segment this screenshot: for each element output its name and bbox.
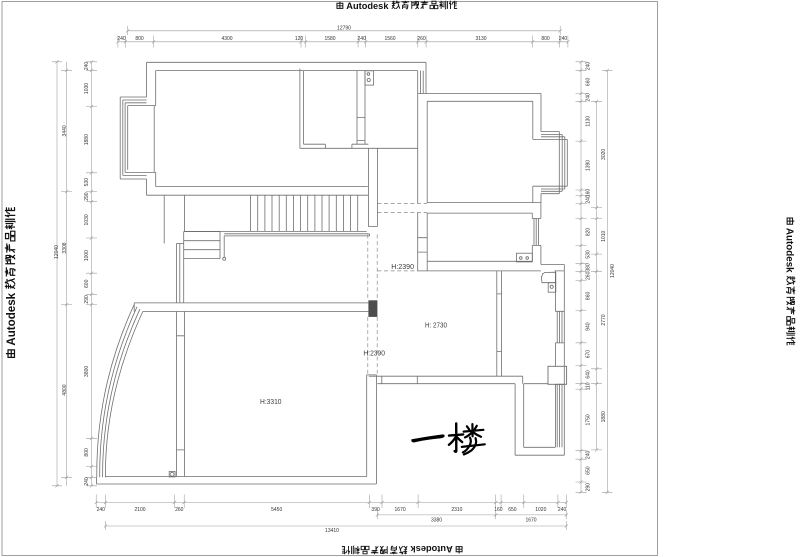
svg-text:650: 650 (586, 466, 592, 475)
svg-text:1580: 1580 (324, 36, 335, 42)
svg-text:240: 240 (586, 451, 592, 460)
svg-text:240: 240 (586, 62, 592, 71)
svg-text:660: 660 (586, 78, 592, 87)
svg-text:1750: 1750 (586, 414, 592, 425)
svg-text:1030: 1030 (84, 214, 90, 225)
svg-text:3380: 3380 (431, 518, 442, 524)
svg-text:12790: 12790 (337, 25, 351, 31)
svg-text:240: 240 (558, 507, 567, 513)
svg-text:5450: 5450 (271, 507, 282, 513)
svg-text:2100: 2100 (134, 507, 145, 513)
svg-text:3308: 3308 (62, 242, 68, 253)
svg-text:1560: 1560 (384, 36, 395, 42)
svg-text:4800: 4800 (62, 384, 68, 395)
svg-text:Autodesk: Autodesk (4, 292, 18, 345)
svg-text:290: 290 (84, 295, 90, 304)
svg-text:3800: 3800 (84, 366, 90, 377)
svg-text:240: 240 (358, 36, 367, 42)
svg-text:800: 800 (541, 36, 550, 42)
svg-text:4300: 4300 (221, 36, 232, 42)
svg-text:1000: 1000 (84, 250, 90, 261)
svg-text:Autodesk: Autodesk (346, 1, 389, 12)
svg-text:260: 260 (417, 36, 426, 42)
svg-text:1880: 1880 (601, 411, 607, 422)
svg-text:240: 240 (559, 36, 568, 42)
svg-text:820: 820 (586, 228, 592, 237)
svg-text:H: 2730: H: 2730 (425, 322, 447, 329)
svg-text:800: 800 (135, 36, 144, 42)
svg-text:1670: 1670 (525, 518, 536, 524)
svg-text:240: 240 (586, 195, 592, 204)
svg-text:120: 120 (295, 36, 304, 42)
svg-text:290: 290 (84, 192, 90, 201)
svg-text:260: 260 (175, 507, 184, 513)
svg-text:3020: 3020 (601, 149, 607, 160)
svg-text:380: 380 (586, 263, 592, 272)
svg-text:260: 260 (586, 271, 592, 280)
svg-text:240: 240 (84, 477, 90, 486)
svg-text:670: 670 (586, 350, 592, 359)
svg-text:290: 290 (586, 483, 592, 492)
svg-text:240: 240 (586, 93, 592, 102)
svg-text:650: 650 (508, 507, 517, 513)
svg-text:12040: 12040 (610, 264, 616, 278)
svg-text:600: 600 (84, 279, 90, 288)
svg-text:13410: 13410 (325, 528, 339, 534)
svg-text:1880: 1880 (84, 134, 90, 145)
svg-text:640: 640 (586, 370, 592, 379)
svg-text:530: 530 (586, 250, 592, 259)
svg-text:390: 390 (371, 507, 380, 513)
svg-text:12040: 12040 (54, 245, 60, 259)
svg-text:240: 240 (97, 507, 106, 513)
svg-text:800: 800 (84, 448, 90, 457)
svg-text:240: 240 (84, 62, 90, 71)
svg-text:Autodesk: Autodesk (410, 543, 453, 554)
svg-text:1670: 1670 (395, 507, 406, 513)
svg-text:530: 530 (84, 178, 90, 187)
svg-text:H:2390: H:2390 (391, 264, 414, 271)
svg-text:2770: 2770 (601, 314, 607, 325)
svg-text:2310: 2310 (451, 507, 462, 513)
svg-text:110: 110 (586, 382, 592, 390)
svg-text:240: 240 (117, 36, 126, 42)
svg-text:1030: 1030 (84, 83, 90, 94)
svg-text:H:2390: H:2390 (363, 350, 385, 357)
svg-text:H:3310: H:3310 (260, 399, 282, 406)
svg-text:940: 940 (586, 322, 592, 331)
svg-text:1130: 1130 (586, 116, 592, 127)
svg-text:860: 860 (586, 292, 592, 301)
svg-text:1010: 1010 (601, 231, 607, 242)
svg-text:160: 160 (494, 507, 503, 513)
svg-text:Autodesk: Autodesk (784, 228, 795, 273)
svg-text:1020: 1020 (535, 507, 546, 513)
svg-text:3130: 3130 (475, 36, 486, 42)
svg-text:3440: 3440 (62, 125, 68, 136)
svg-text:1390: 1390 (586, 160, 592, 171)
